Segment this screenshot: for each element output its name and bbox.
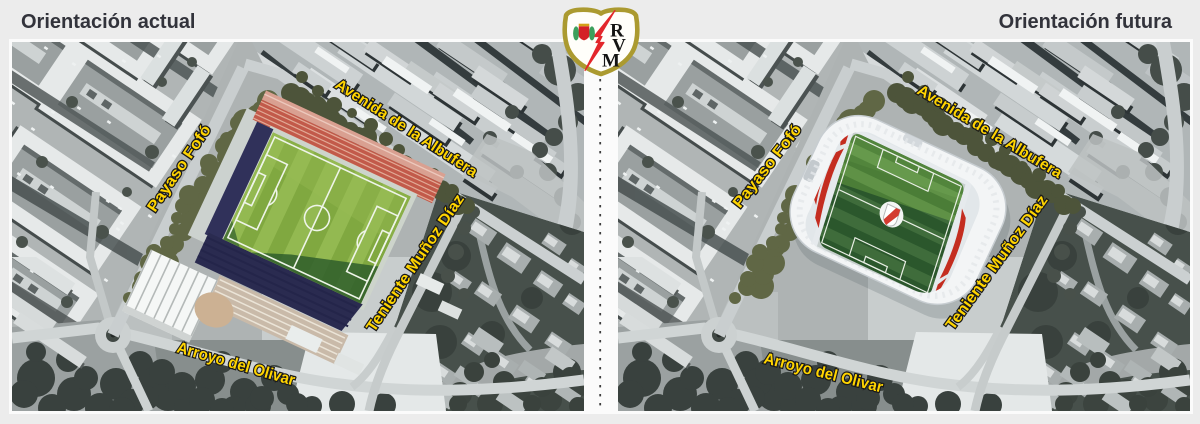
svg-text:Orientación actual: Orientación actual <box>21 11 196 33</box>
svg-text:Orientación futura: Orientación futura <box>999 11 1173 33</box>
svg-text:M: M <box>602 51 620 72</box>
